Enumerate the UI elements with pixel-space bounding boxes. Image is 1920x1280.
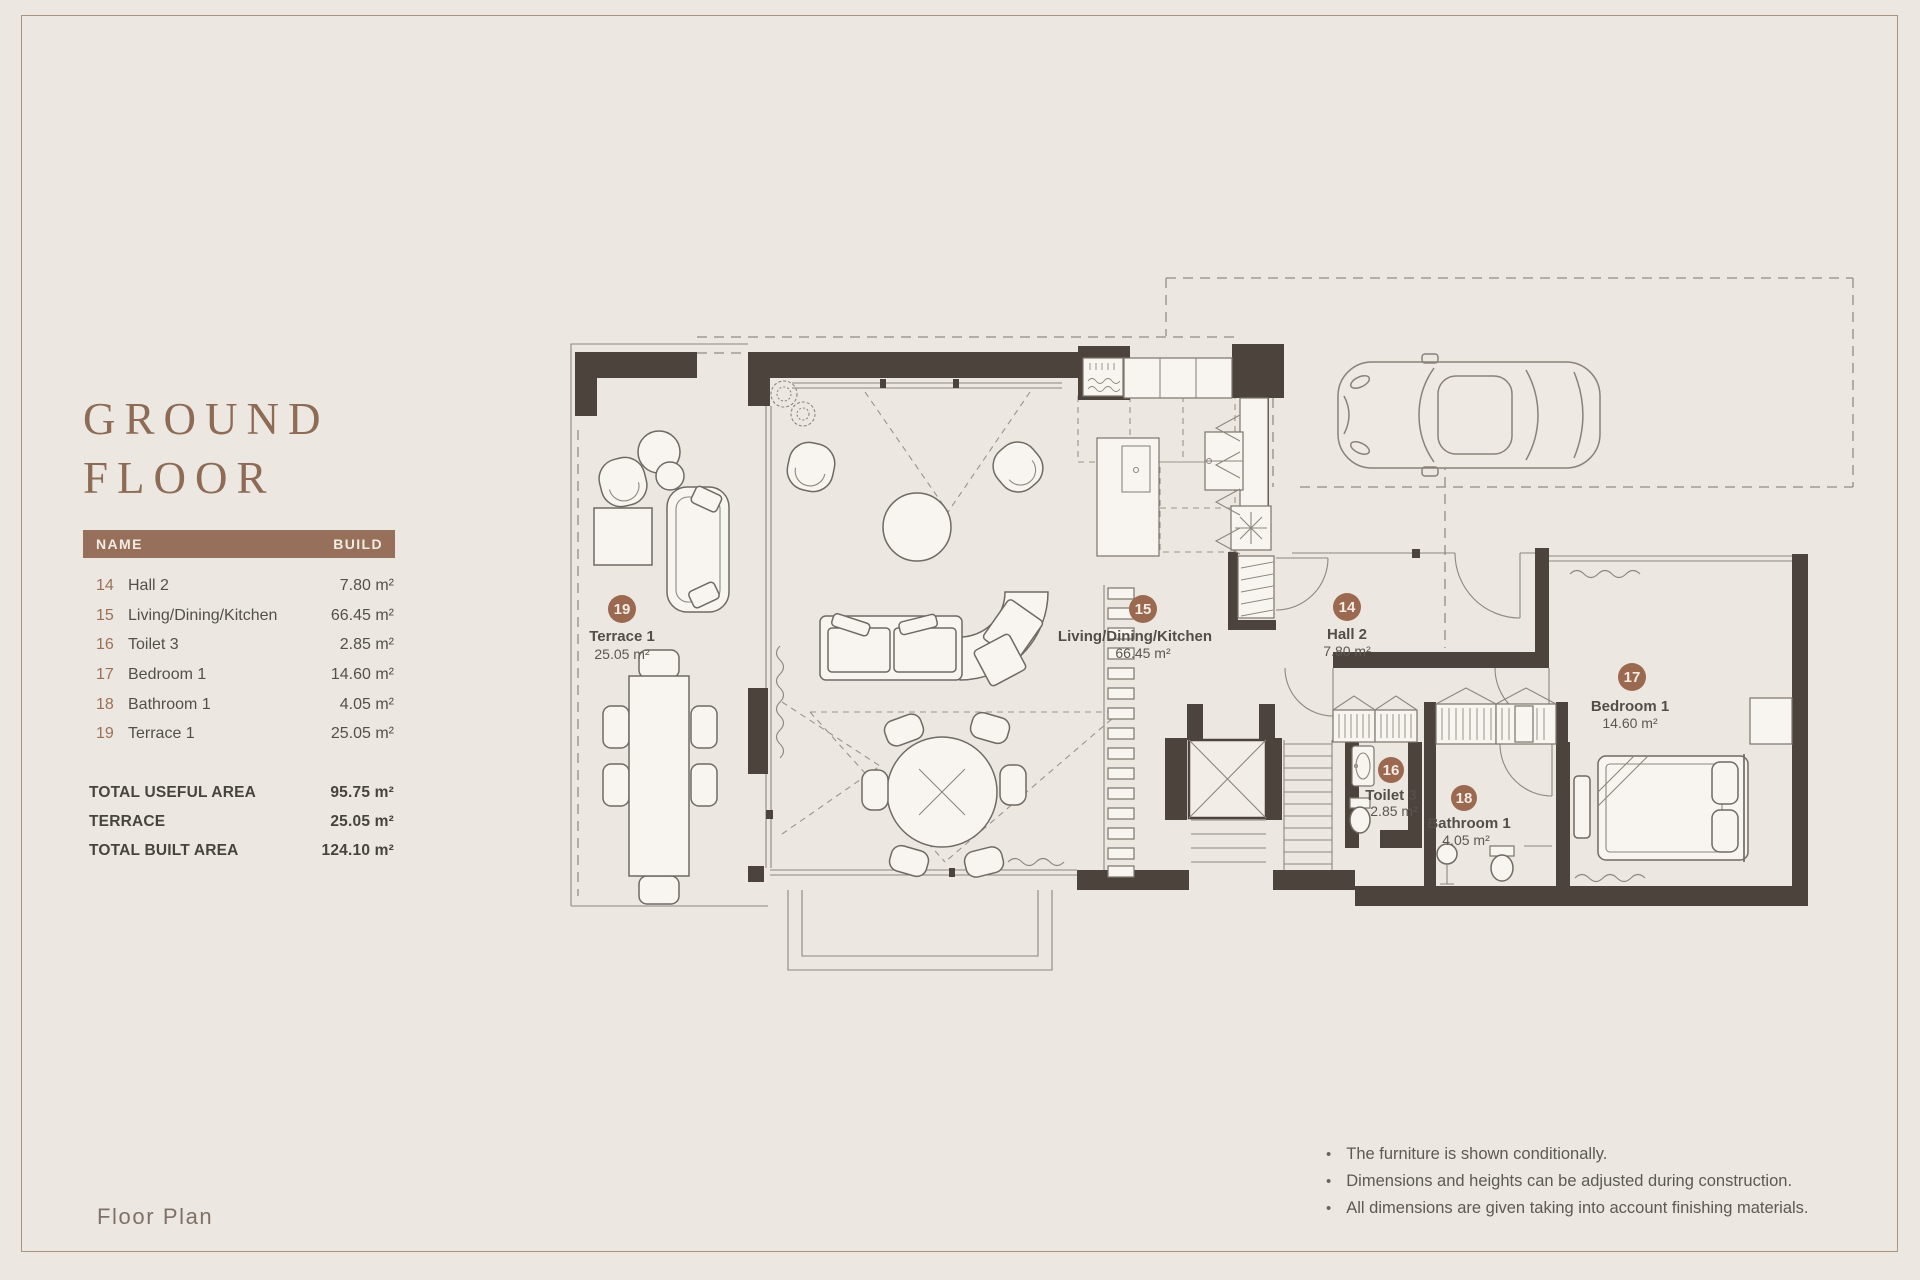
living-room-furniture [784, 434, 1052, 879]
page-title-line1: GROUND [83, 390, 395, 449]
column-header-name: NAME [96, 536, 143, 552]
note-item: •All dimensions are given taking into ac… [1326, 1195, 1882, 1222]
table-row: 18Bathroom 14.05 m² [83, 690, 395, 720]
car-illustration [1338, 354, 1600, 476]
area-table-rows: 14Hall 27.80 m² 15Living/Dining/Kitchen6… [83, 571, 395, 749]
room-number: 14 [96, 577, 128, 595]
room-name: Hall 2 [128, 577, 340, 595]
room-number: 18 [96, 696, 128, 714]
room-label-name: Terrace 1 [589, 628, 655, 645]
table-row: 17Bedroom 114.60 m² [83, 660, 395, 690]
room-area: 66.45 m² [331, 607, 394, 625]
room-number: 19 [96, 725, 128, 743]
total-label: TERRACE [89, 813, 330, 831]
room-number: 17 [96, 666, 128, 684]
total-row: TOTAL BUILT AREA124.10 m² [83, 836, 395, 865]
bullet-icon: • [1326, 1195, 1331, 1222]
room-label-name: Bathroom 1 [1427, 815, 1510, 832]
page-title-line2: FLOOR [83, 449, 395, 508]
total-row: TOTAL USEFUL AREA95.75 m² [83, 778, 395, 807]
total-row: TERRACE25.05 m² [83, 807, 395, 836]
room-label-bathroom: 18 Bathroom 1 4.05 m² [1427, 785, 1510, 848]
room-number: 16 [96, 636, 128, 654]
floor-plan-drawing: 19 Terrace 1 25.05 m² 15 Living/Dining/K… [560, 270, 1890, 1010]
room-area: 14.60 m² [331, 666, 394, 684]
table-row: 16Toilet 32.85 m² [83, 630, 395, 660]
note-item: •The furniture is shown conditionally. [1326, 1141, 1882, 1168]
room-label-name: Toilet 3 [1365, 787, 1416, 804]
room-name: Terrace 1 [128, 725, 331, 743]
area-table-header: NAME BUILD [83, 530, 395, 558]
note-text: Dimensions and heights can be adjusted d… [1346, 1168, 1792, 1195]
room-label-number: 16 [1383, 762, 1400, 779]
room-label-name: Hall 2 [1327, 626, 1367, 643]
room-name: Bedroom 1 [128, 666, 331, 684]
room-label-bedroom: 17 Bedroom 1 14.60 m² [1591, 663, 1669, 731]
room-name: Living/Dining/Kitchen [128, 607, 331, 625]
room-label-number: 17 [1624, 669, 1641, 686]
bullet-icon: • [1326, 1168, 1331, 1195]
note-text: All dimensions are given taking into acc… [1346, 1195, 1808, 1222]
note-item: •Dimensions and heights can be adjusted … [1326, 1168, 1882, 1195]
room-label-hall: 14 Hall 2 7.80 m² [1323, 593, 1371, 659]
room-label-area: 2.85 m² [1370, 803, 1418, 819]
room-label-number: 18 [1456, 790, 1473, 807]
table-row: 15Living/Dining/Kitchen66.45 m² [83, 601, 395, 631]
total-value: 124.10 m² [322, 842, 394, 860]
room-label-area: 14.60 m² [1602, 715, 1658, 731]
room-label-area: 66.45 m² [1115, 645, 1171, 661]
bullet-icon: • [1326, 1141, 1331, 1168]
room-label-terrace: 19 Terrace 1 25.05 m² [589, 595, 655, 662]
wardrobes [1333, 688, 1556, 744]
room-name: Bathroom 1 [128, 696, 340, 714]
page-title: GROUND FLOOR [83, 390, 395, 508]
room-number: 15 [96, 607, 128, 625]
note-text: The furniture is shown conditionally. [1346, 1141, 1607, 1168]
room-area: 2.85 m² [340, 636, 394, 654]
summary-panel: GROUND FLOOR NAME BUILD 14Hall 27.80 m² … [83, 390, 395, 865]
room-label-name: Living/Dining/Kitchen [1058, 628, 1212, 645]
notes-list: •The furniture is shown conditionally. •… [1326, 1141, 1882, 1222]
room-label-number: 19 [614, 601, 631, 618]
room-label-area: 7.80 m² [1323, 643, 1371, 659]
totals-block: TOTAL USEFUL AREA95.75 m² TERRACE25.05 m… [83, 778, 395, 865]
total-value: 95.75 m² [330, 784, 394, 802]
table-row: 19Terrace 125.05 m² [83, 719, 395, 749]
room-area: 4.05 m² [340, 696, 394, 714]
floor-plan-caption: Floor Plan [97, 1204, 213, 1230]
room-area: 25.05 m² [331, 725, 394, 743]
total-value: 25.05 m² [330, 813, 394, 831]
room-area: 7.80 m² [340, 577, 394, 595]
room-label-area: 25.05 m² [594, 646, 650, 662]
terrace-furniture [594, 431, 729, 904]
room-label-name: Bedroom 1 [1591, 698, 1669, 715]
total-label: TOTAL BUILT AREA [89, 842, 322, 860]
room-label-area: 4.05 m² [1442, 832, 1490, 848]
bathroom-fixtures [1437, 844, 1552, 884]
column-header-build: BUILD [333, 536, 383, 552]
table-row: 14Hall 27.80 m² [83, 571, 395, 601]
room-name: Toilet 3 [128, 636, 340, 654]
room-label-living: 15 Living/Dining/Kitchen 66.45 m² [1058, 595, 1212, 661]
total-label: TOTAL USEFUL AREA [89, 784, 330, 802]
room-label-number: 15 [1135, 601, 1152, 618]
room-label-number: 14 [1339, 599, 1356, 616]
